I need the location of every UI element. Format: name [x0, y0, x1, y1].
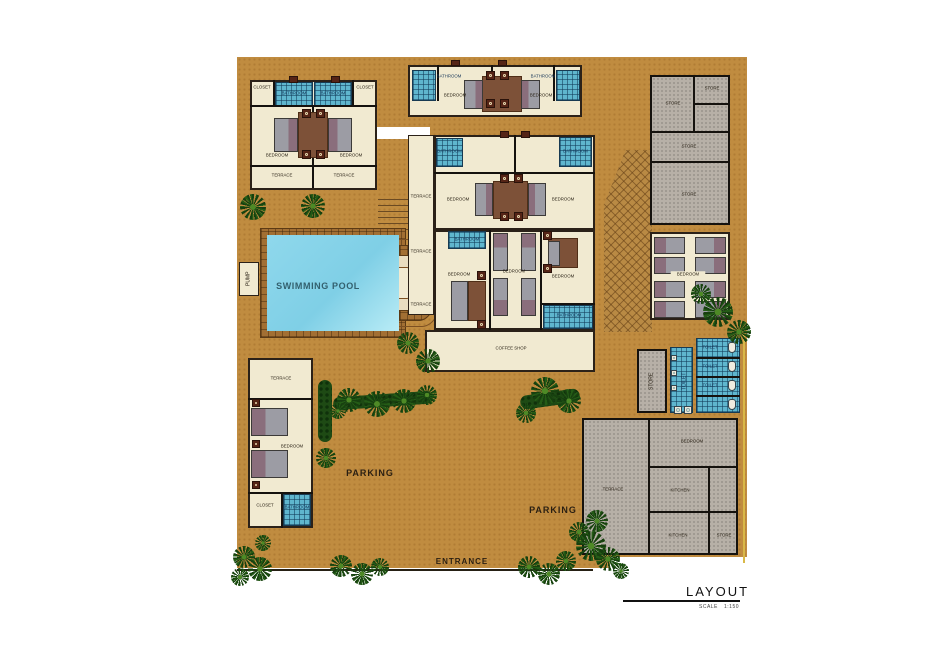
drawing-title: LAYOUT [686, 584, 749, 599]
bathroom-label: BATHROOM [440, 149, 459, 155]
terrace-label: TERRACE [412, 194, 431, 200]
nightstand [486, 71, 495, 80]
store-label: STORE [641, 355, 663, 407]
terrace-label: TERRACE [334, 173, 354, 179]
bedroom-label: BEDROOM [676, 439, 708, 445]
roof-vent [451, 60, 460, 66]
nightstand [500, 174, 509, 183]
scale-value: 1:150 [724, 604, 739, 610]
bed [251, 450, 288, 478]
scale-label: SCALE [699, 604, 718, 610]
nightstand [316, 109, 325, 118]
wall [312, 165, 314, 188]
bed [251, 408, 288, 436]
site-edge-cut [610, 557, 750, 575]
nightstand [486, 99, 495, 108]
closet-label: CLOSET [254, 85, 270, 91]
sink [684, 406, 692, 414]
wall [273, 80, 275, 107]
toilet-label: TOILET [701, 364, 720, 369]
urinal [671, 355, 677, 361]
bed [521, 278, 536, 316]
terrace-label: TERRACE [599, 487, 628, 493]
toilet-label: TOILET [701, 345, 720, 350]
wall [352, 80, 354, 107]
bedroom-label: BEDROOM [530, 93, 552, 99]
nightstand [316, 150, 325, 159]
roof-vent [500, 131, 509, 138]
roof-vent [289, 76, 298, 83]
bedroom-label: BEDROOM [266, 153, 288, 159]
nightstand [500, 71, 509, 80]
bed [328, 118, 352, 152]
bed [493, 278, 508, 316]
store-label: STORE [677, 192, 701, 198]
closet-label: CLOSET [357, 85, 373, 91]
bed [548, 241, 560, 266]
toilet-label: TOILET [679, 360, 691, 402]
wall [648, 466, 738, 468]
nightstand [252, 481, 260, 489]
entrance-label: ENTRANCE [434, 557, 490, 567]
terrace-label: TERRACE [263, 376, 299, 382]
main-terrace-strip [408, 135, 434, 315]
bed-rug [468, 281, 486, 321]
nightstand [477, 271, 486, 280]
roof-vent [331, 76, 340, 83]
wall [693, 103, 730, 105]
bed [274, 118, 298, 152]
terrace-label: TERRACE [412, 302, 431, 308]
wall [489, 230, 491, 330]
wall [437, 65, 439, 101]
nightstand [514, 174, 523, 183]
pool-label: SWIMMING POOL [270, 280, 366, 292]
wall [648, 418, 650, 555]
toilet-fixture [728, 361, 736, 372]
bed [654, 281, 685, 298]
bed [528, 183, 546, 216]
bathroom-label: BATHROOM [453, 237, 480, 243]
store-label: STORE [715, 533, 734, 539]
bed [654, 301, 685, 318]
roof-vent [521, 131, 530, 138]
villa-tm-bathroom-left [412, 70, 436, 101]
terrace-label: TERRACE [412, 249, 431, 255]
nightstand [514, 212, 523, 221]
kitchen-label: KITCHEN [665, 533, 691, 539]
wall [648, 511, 738, 513]
bed [654, 237, 685, 254]
wall [650, 161, 730, 163]
bedroom-label: BEDROOM [340, 153, 362, 159]
coffee-shop-label: COFFEE SHOP [491, 346, 531, 352]
parking-label-right: PARKING [527, 505, 579, 515]
parking-label-left: PARKING [344, 468, 396, 478]
wall [708, 466, 710, 555]
wall [540, 230, 542, 330]
toilet-label: TOILET [701, 383, 720, 388]
wall [650, 131, 730, 133]
sink [674, 406, 682, 414]
bedroom-label: BEDROOM [501, 269, 527, 275]
store-label: STORE [661, 101, 685, 107]
stairs [378, 196, 408, 230]
toilet-fixture [728, 380, 736, 391]
bed [451, 281, 468, 321]
nightstand [500, 99, 509, 108]
bathroom-label: BATHROOM [281, 91, 307, 97]
bathroom-label: BATHROOM [564, 149, 588, 155]
kitchen-label: KITCHEN [667, 488, 693, 494]
pump-label: PUMP [241, 264, 257, 294]
bedroom-label: BEDROOM [671, 271, 706, 277]
site-plan: SWIMMING POOL PUMP CLOSET CLOSET BATHROO… [0, 0, 940, 665]
bed [521, 233, 536, 271]
nightstand [302, 150, 311, 159]
nightstand [477, 320, 486, 329]
stores-block [650, 75, 730, 225]
bedroom-label: BEDROOM [448, 272, 470, 278]
nightstand [543, 264, 552, 273]
bathroom-label: BATHROOM [557, 313, 581, 319]
bedroom-label: BEDROOM [444, 93, 466, 99]
nightstand [500, 212, 509, 221]
roof-vent [498, 60, 507, 66]
terrace-label: TERRACE [272, 173, 292, 179]
store-label: STORE [701, 86, 723, 92]
bed [464, 80, 483, 109]
nightstand [252, 440, 260, 448]
bathroom-label: BATHROOM [287, 505, 307, 511]
toilet-fixture [728, 399, 736, 410]
nightstand [543, 231, 552, 240]
bathroom-label: BATHROOM [438, 74, 460, 79]
bedroom-label: BEDROOM [552, 197, 574, 203]
wall [696, 376, 740, 378]
closet-label: CLOSET [254, 503, 276, 509]
bedroom-label: BEDROOM [447, 197, 469, 203]
title-underline [623, 600, 740, 602]
boundary-line-right [743, 335, 745, 563]
nightstand [252, 399, 260, 407]
bedroom-label: BEDROOM [278, 444, 307, 450]
bathroom-label: BATHROOM [532, 74, 554, 79]
bed [695, 237, 726, 254]
bathroom-label: BATHROOM [320, 91, 346, 97]
wall [553, 65, 555, 101]
store-label: STORE [677, 144, 701, 150]
bed [493, 233, 508, 271]
toilet-fixture [728, 342, 736, 353]
wall [514, 135, 516, 172]
villa-tm-bathroom-right [556, 70, 580, 101]
nightstand [302, 109, 311, 118]
bed [475, 183, 493, 216]
urinal [671, 385, 677, 391]
wall [696, 357, 740, 359]
urinal [671, 370, 677, 376]
bedroom-label: BEDROOM [552, 274, 574, 280]
wall [696, 395, 740, 397]
